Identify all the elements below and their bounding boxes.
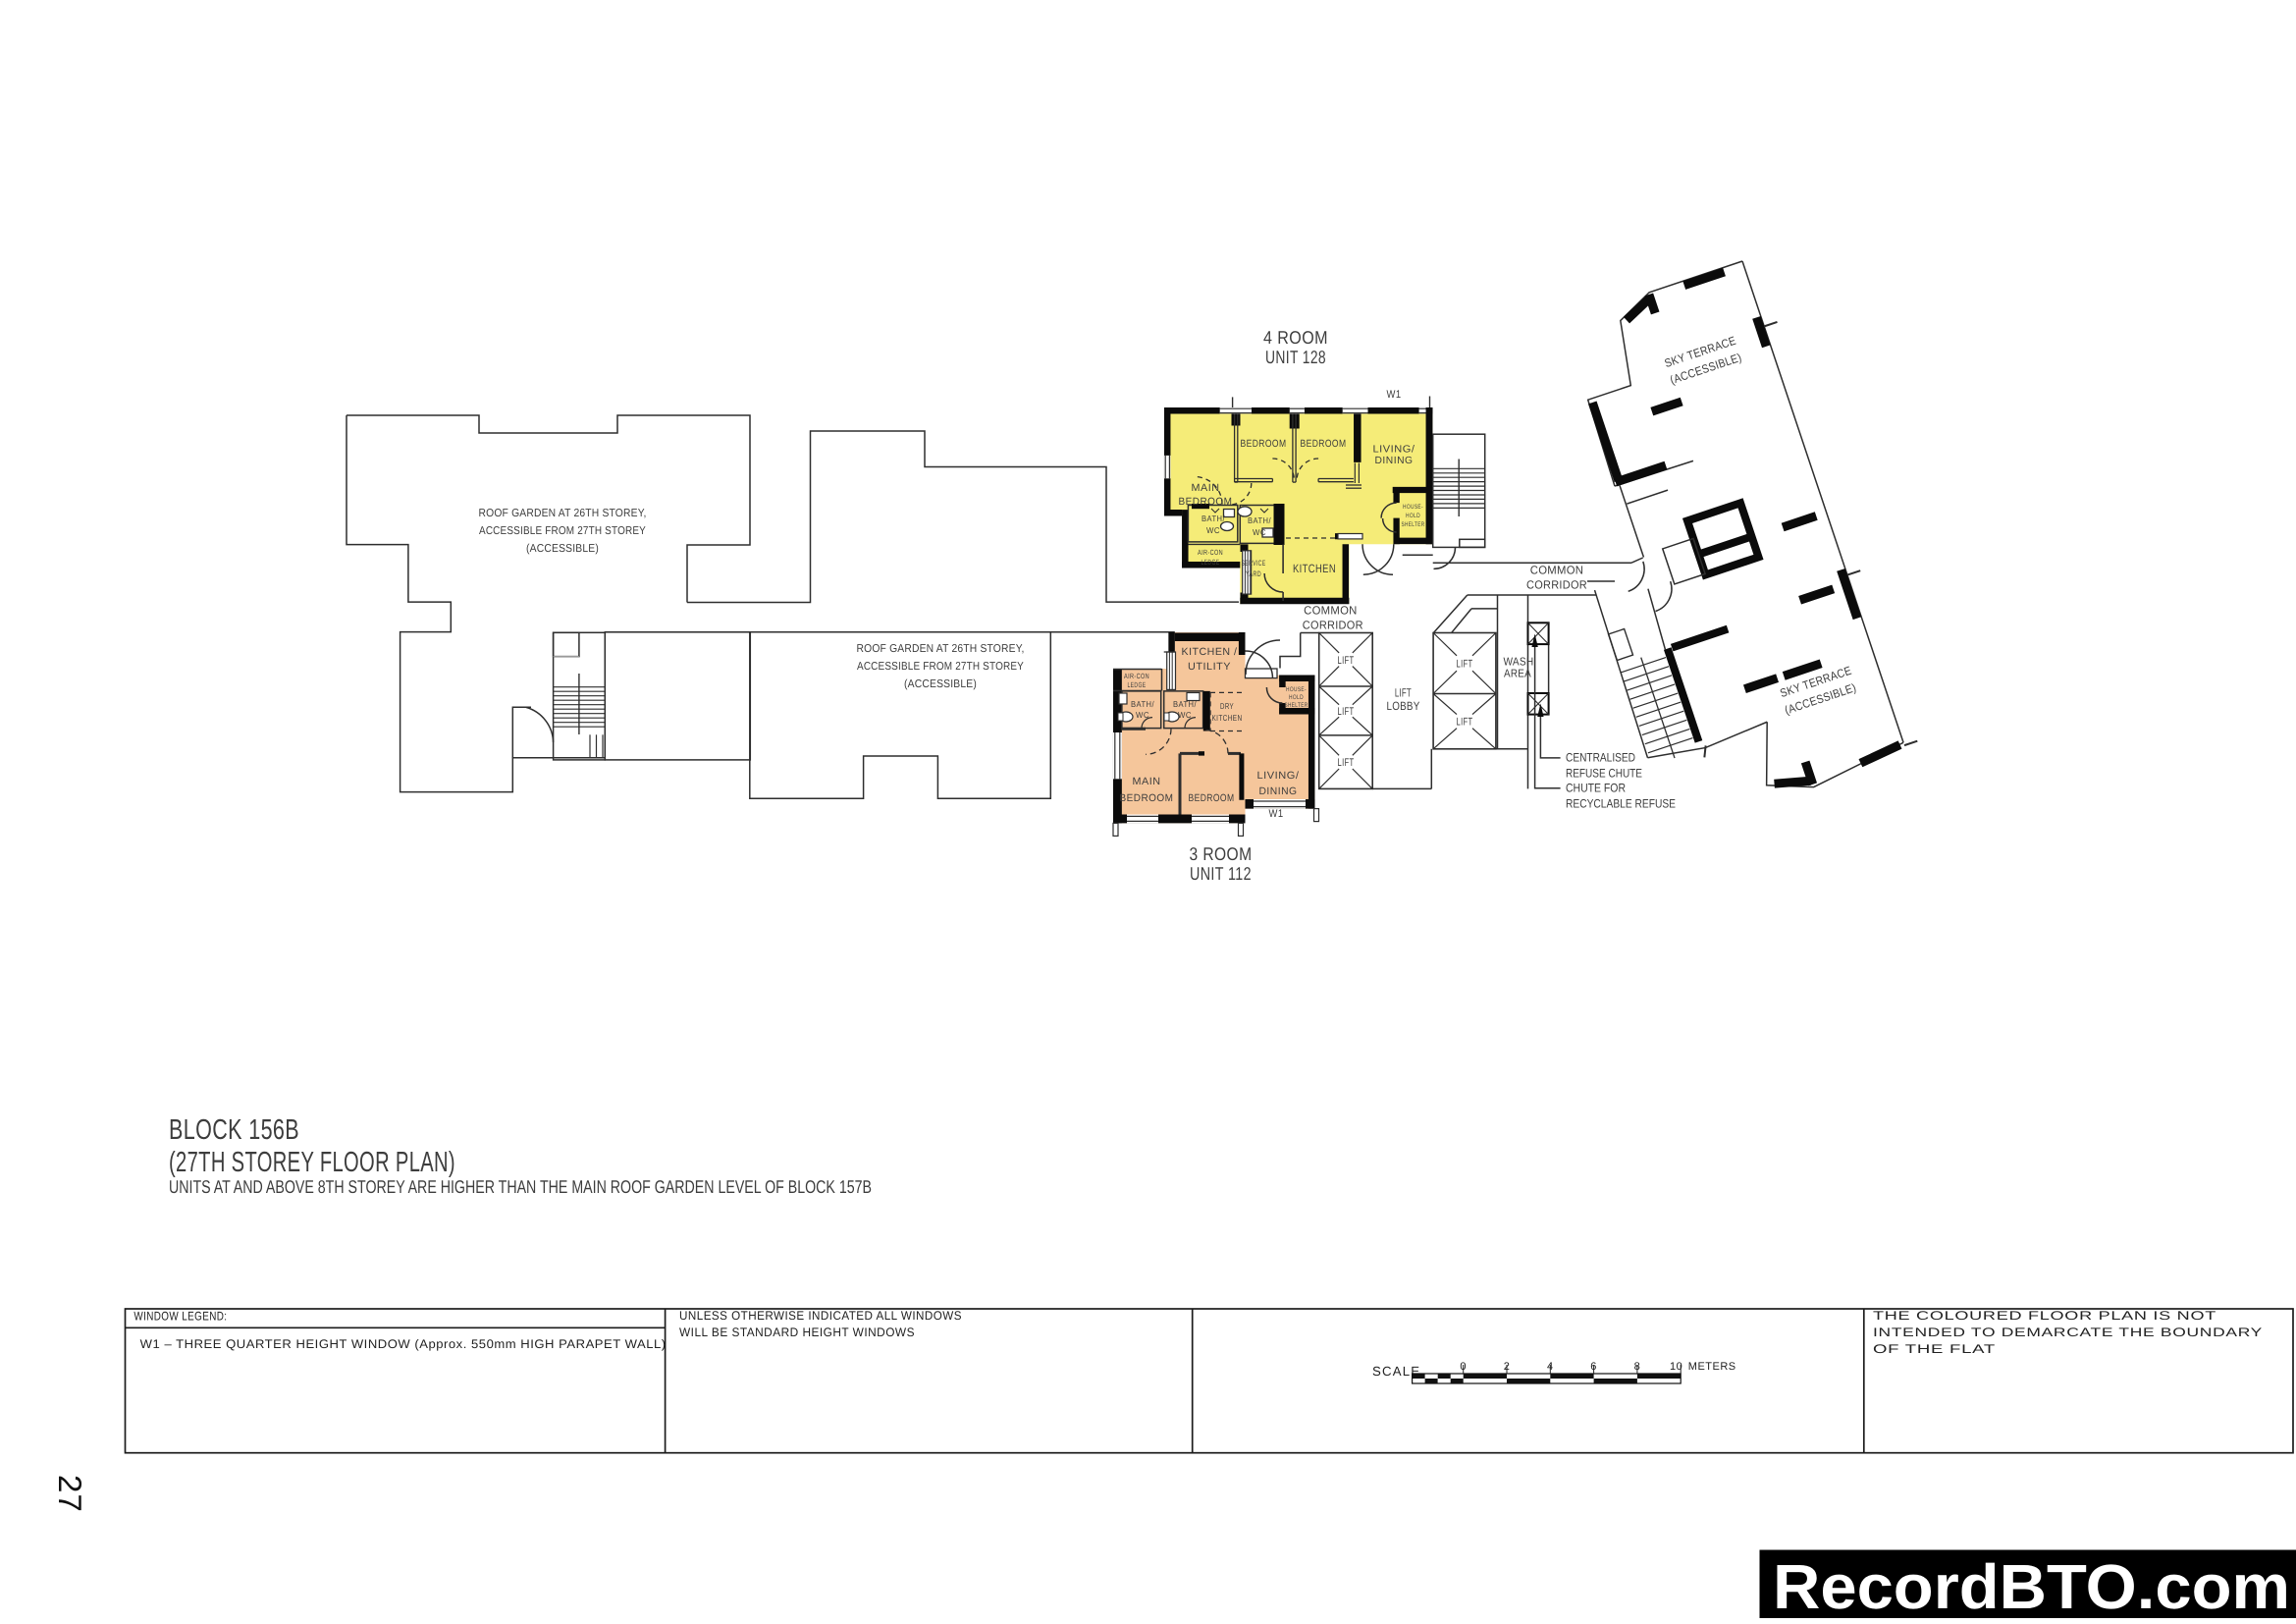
svg-text:SERVICE: SERVICE — [1242, 559, 1266, 568]
svg-text:W1 – THREE QUARTER HEIGHT WI: W1 – THREE QUARTER HEIGHT WINDOW (Approx… — [140, 1337, 667, 1351]
svg-text:WC: WC — [1136, 710, 1149, 720]
svg-text:KITCHEN: KITCHEN — [1212, 713, 1243, 723]
svg-text:UNIT 112: UNIT 112 — [1190, 863, 1252, 884]
svg-text:(ACCESSIBLE): (ACCESSIBLE) — [526, 543, 599, 555]
svg-text:W1: W1 — [1387, 389, 1402, 401]
svg-text:OF THE FLAT: OF THE FLAT — [1873, 1342, 1996, 1356]
svg-text:LOBBY: LOBBY — [1387, 699, 1420, 713]
svg-text:BLOCK 156B: BLOCK 156B — [169, 1114, 299, 1146]
svg-text:KITCHEN /: KITCHEN / — [1182, 646, 1238, 658]
svg-text:DINING: DINING — [1259, 785, 1298, 797]
svg-text:HOUSE-: HOUSE- — [1286, 686, 1307, 693]
svg-text:LEDGE: LEDGE — [1128, 680, 1147, 689]
svg-text:HOUSE-: HOUSE- — [1403, 504, 1423, 511]
svg-text:ROOF GARDEN AT 26TH STOREY,: ROOF GARDEN AT 26TH STOREY, — [479, 508, 647, 519]
svg-text:LEDGE: LEDGE — [1201, 558, 1220, 567]
svg-text:3 ROOM: 3 ROOM — [1190, 843, 1253, 864]
svg-text:UTILITY: UTILITY — [1188, 661, 1231, 673]
svg-text:WC: WC — [1253, 527, 1266, 537]
svg-text:ACCESSIBLE FROM 27TH STOREY: ACCESSIBLE FROM 27TH STOREY — [479, 525, 646, 537]
svg-text:WASH: WASH — [1504, 657, 1534, 669]
svg-text:LIFT: LIFT — [1395, 686, 1412, 700]
svg-text:LIFT: LIFT — [1338, 655, 1355, 667]
svg-text:LIFT: LIFT — [1457, 717, 1473, 729]
svg-text:LIVING/: LIVING/ — [1257, 770, 1300, 782]
svg-text:COMMON: COMMON — [1530, 564, 1584, 577]
svg-text:MAIN: MAIN — [1133, 776, 1161, 787]
svg-text:CORRIDOR: CORRIDOR — [1303, 618, 1363, 631]
svg-text:LIFT: LIFT — [1338, 706, 1355, 718]
svg-text:CENTRALISED: CENTRALISED — [1566, 751, 1635, 765]
svg-text:RecordBTO.com: RecordBTO.com — [1773, 1551, 2290, 1622]
svg-text:BEDROOM: BEDROOM — [1179, 496, 1233, 508]
svg-text:REFUSE CHUTE: REFUSE CHUTE — [1566, 767, 1642, 781]
svg-text:BATH/: BATH/ — [1201, 514, 1225, 523]
svg-text:KITCHEN: KITCHEN — [1293, 562, 1336, 575]
svg-text:AREA: AREA — [1504, 669, 1531, 680]
svg-text:AIR-CON: AIR-CON — [1198, 548, 1223, 557]
svg-text:10 METERS: 10 METERS — [1670, 1361, 1736, 1373]
svg-text:LIFT: LIFT — [1457, 659, 1473, 671]
svg-text:CORRIDOR: CORRIDOR — [1526, 578, 1587, 592]
svg-text:BATH/: BATH/ — [1248, 515, 1271, 525]
svg-text:BEDROOM: BEDROOM — [1189, 792, 1235, 804]
svg-text:LIFT: LIFT — [1338, 757, 1355, 769]
svg-text:UNLESS OTHERWISE INDICATED ALL: UNLESS OTHERWISE INDICATED ALL WINDOWS — [679, 1309, 962, 1323]
svg-text:ACCESSIBLE FROM 27TH STOREY: ACCESSIBLE FROM 27TH STOREY — [857, 661, 1024, 673]
svg-text:SHELTER: SHELTER — [1402, 521, 1425, 528]
svg-text:INTENDED TO DEMARCATE THE BOUN: INTENDED TO DEMARCATE THE BOUNDARY — [1873, 1326, 2263, 1339]
svg-text:WILL BE STANDARD HEIGHT WINDOW: WILL BE STANDARD HEIGHT WINDOWS — [679, 1326, 915, 1339]
svg-text:DINING: DINING — [1375, 456, 1414, 466]
svg-text:RECYCLABLE REFUSE: RECYCLABLE REFUSE — [1566, 797, 1676, 811]
svg-text:WINDOW LEGEND:: WINDOW LEGEND: — [133, 1310, 227, 1324]
svg-text:(27TH STOREY FLOOR PLAN): (27TH STOREY FLOOR PLAN) — [169, 1147, 455, 1178]
svg-text:CHUTE FOR: CHUTE FOR — [1566, 782, 1626, 795]
svg-text:COMMON: COMMON — [1304, 604, 1358, 618]
svg-text:BEDROOM: BEDROOM — [1120, 792, 1174, 804]
svg-text:BEDROOM: BEDROOM — [1241, 438, 1287, 450]
svg-text:BATH/: BATH/ — [1131, 699, 1154, 709]
svg-text:BEDROOM: BEDROOM — [1301, 438, 1347, 450]
svg-text:ROOF GARDEN AT 26TH STOREY,: ROOF GARDEN AT 26TH STOREY, — [857, 643, 1025, 655]
svg-text:DRY: DRY — [1220, 701, 1234, 711]
svg-text:MAIN: MAIN — [1192, 482, 1220, 494]
svg-text:BATH/: BATH/ — [1173, 699, 1197, 709]
svg-text:4 ROOM: 4 ROOM — [1263, 327, 1328, 348]
svg-text:YARD: YARD — [1246, 569, 1261, 578]
svg-text:HOLD: HOLD — [1289, 694, 1304, 701]
svg-text:LIVING/: LIVING/ — [1373, 445, 1415, 456]
svg-text:SHELTER: SHELTER — [1285, 702, 1308, 709]
svg-text:WC: WC — [1206, 525, 1220, 535]
svg-text:27: 27 — [52, 1475, 88, 1513]
svg-text:THE COLOURED FLOOR PLAN IS NOT: THE COLOURED FLOOR PLAN IS NOT — [1873, 1309, 2216, 1323]
svg-text:WC: WC — [1178, 710, 1192, 720]
svg-text:(ACCESSIBLE): (ACCESSIBLE) — [904, 678, 977, 690]
svg-text:AIR-CON: AIR-CON — [1124, 672, 1149, 680]
svg-text:W1: W1 — [1269, 808, 1284, 820]
svg-text:HOLD: HOLD — [1406, 513, 1420, 519]
svg-text:UNIT 128: UNIT 128 — [1265, 347, 1326, 367]
svg-text:UNITS AT AND ABOVE 8TH STOREY: UNITS AT AND ABOVE 8TH STOREY ARE HIGHER… — [169, 1176, 872, 1197]
